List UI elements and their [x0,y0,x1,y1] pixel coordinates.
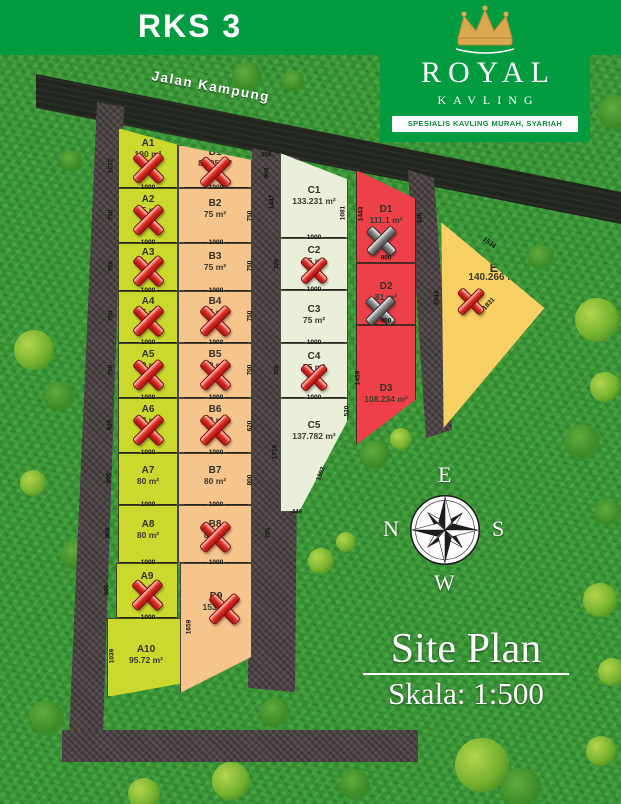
plot-id: A10 [137,644,155,655]
dimension-label-road-right-top: 430 [417,213,424,224]
lot-width-dimension: 1000 [283,286,345,293]
lot-width-dimension: 1000 [283,234,345,241]
dimension-label-D1-left: 1443 [358,207,365,221]
lot-width-dimension: 1000 [120,239,176,246]
plot-id: A7 [142,465,155,476]
dimension-label-A3-left: 780 [108,261,115,272]
plot-id: A1 [142,138,155,149]
brand-tagline: SPESIALIS KAVLING MURAH, SYARIAH [392,116,578,132]
lot-width-dimension: 1000 [120,449,176,456]
dimension-label-B4-right: 750 [247,311,254,322]
crown-icon [450,4,520,56]
plot-area: 80 m² [137,530,159,540]
plot-id: A8 [142,519,155,530]
dimension-label-B7-right: 800 [247,475,254,486]
plot-A7[interactable]: A780 m² [118,453,178,505]
plot-id: D2 [380,281,393,292]
gray-x-sold-marker [365,225,397,257]
plot-area: 75 m² [137,205,159,215]
plot-area: 70 m² [137,360,159,370]
compass-rose-icon [407,492,483,568]
plot-B6[interactable]: B692 m² [178,398,252,453]
lot-width-dimension: 1000 [120,339,176,346]
lot-width-dimension: 1000 [120,287,176,294]
plot-area: 70 m² [204,360,226,370]
plot-B4[interactable]: B475 m² [178,291,252,343]
plot-area: 92 m² [137,415,159,425]
plot-id: D1 [380,204,393,215]
plot-area: 75 m² [303,315,325,325]
plot-C4[interactable]: C475 m² [280,343,348,398]
plot-area: 80 m² [137,476,159,486]
plot-B2[interactable]: B275 m² [178,188,252,243]
plot-area: 133.231 m² [292,196,335,206]
dimension-label-C1-right: 1081 [340,206,347,220]
dimension-label-A10-left: 1039 [109,649,116,663]
plot-id: D3 [380,383,393,394]
lot-width-dimension: 1000 [184,339,248,346]
plot-id: A3 [142,247,155,258]
dimension-label-C5-right: 520 [344,406,351,417]
site-plan-poster: Jalan Kampung A1100 m²A275 m²A378 m²A475… [0,0,621,804]
plot-A4[interactable]: A475 m² [118,291,178,343]
dimension-label-road-top: 300 [261,152,272,159]
plot-id: B9 [210,591,223,602]
compass-west-label: W [434,570,455,596]
dimension-label-B6-right: 620 [247,421,254,432]
dimension-label-C5-left: 1718 [272,445,279,459]
plot-area: 75 m² [204,307,226,317]
plot-area: 78 m² [137,258,159,268]
plot-area: 75 m² [204,262,226,272]
plot-id: C5 [308,420,321,431]
dimension-label-road-middle-bottom: 765 [265,528,272,539]
plot-area: 92 m² [204,415,226,425]
plot-area: 80 m² [204,476,226,486]
plot-area: 75 m² [137,307,159,317]
plot-area: 75 m² [303,362,325,372]
lot-width-dimension: 1000 [184,501,248,508]
lot-width-dimension: 1000 [120,184,176,191]
plot-id: A4 [142,296,155,307]
plot-C3[interactable]: C375 m² [280,290,348,343]
compass-east-label: E [438,462,451,488]
dimension-label-C2-left: 720 [274,259,281,270]
brand-name: ROYAL [380,56,590,90]
plot-A3[interactable]: A378 m² [118,243,178,291]
plot-C2[interactable]: C275 m² [280,238,348,290]
lot-width-dimension: 1000 [184,559,248,566]
plot-id: C1 [308,185,321,196]
lot-width-dimension: 1000 [184,394,248,401]
dimension-label-A7-left: 800 [106,473,113,484]
plot-B8[interactable]: B880 m² [178,505,252,563]
brand-subname: KAVLING [380,93,590,108]
site-plan-title-block: Site Plan Skala: 1:500 [352,628,580,711]
lot-width-dimension: 1000 [184,287,248,294]
dimension-label-B9-left: 1659 [186,620,193,634]
dimension-label-D2-bottom: 800 [381,318,392,325]
plot-id: B2 [209,198,222,209]
plot-B7[interactable]: B780 m² [178,453,252,505]
dimension-label-C5-bottom: 446 [292,509,303,516]
poster-title: RKS 3 [60,8,320,45]
plot-id: B5 [209,349,222,360]
dimension-label-B2-right: 750 [247,211,254,222]
lot-width-dimension: 1000 [283,394,345,401]
lot-width-dimension: 1000 [120,394,176,401]
lot-width-dimension: 1000 [184,239,248,246]
plot-area: 87.05 m² [198,158,232,168]
dimension-label-A1-left: 1072 [108,159,115,173]
dimension-label-C4-left: 700 [274,365,281,376]
title-underline [363,673,568,675]
site-plan-title: Site Plan [352,628,580,670]
dimension-label-C1-left: 1447 [269,195,276,209]
dimension-label-road-right: 2044 [434,291,441,305]
brand-logo-panel: ROYAL KAVLING SPESIALIS KAVLING MURAH, S… [380,0,590,142]
plot-area: 75 m² [204,209,226,219]
plot-id: B4 [209,296,222,307]
scale-label: Skala: 1:500 [352,677,580,711]
plot-id: A5 [142,349,155,360]
plot-A8[interactable]: A880 m² [118,505,178,563]
dimension-label-A8-left: 800 [105,528,112,539]
lot-width-dimension: 1000 [184,184,248,191]
plot-A9[interactable]: A980 m² [116,563,178,618]
lot-width-dimension: 1000 [120,614,176,621]
dimension-label-B1-right: 900 [264,168,271,179]
plot-id: A9 [141,571,154,582]
dimension-label-D1-bottom: 900 [381,255,392,262]
compass-north-label: N [383,516,399,542]
plot-id: C3 [308,304,321,315]
plot-id: B7 [209,465,222,476]
dimension-label-A4-left: 750 [108,311,115,322]
lot-width-dimension: 1000 [120,501,176,508]
plot-id: B6 [209,404,222,415]
plot-area: 137.782 m² [292,431,335,441]
lot-width-dimension: 1000 [184,449,248,456]
dimension-label-A5-left: 700 [108,365,115,376]
plot-B5[interactable]: B570 m² [178,343,252,398]
plot-area: 111.1 m² [369,215,402,225]
plot-B3[interactable]: B375 m² [178,243,252,291]
dimension-label-B5-right: 700 [247,365,254,376]
dimension-label-A6-left: 920 [107,420,114,431]
dimension-label-A2-left: 750 [108,210,115,221]
compass-south-label: S [492,516,504,542]
plot-A5[interactable]: A570 m² [118,343,178,398]
plot-id: C4 [308,351,321,362]
lot-width-dimension: 1000 [120,559,176,566]
plot-area: 100 m² [135,149,162,159]
lot-width-dimension: 1000 [283,339,345,346]
plot-area: 153 m² [203,602,230,612]
plot-id: B8 [209,519,222,530]
plot-area: 108.234 m² [364,394,407,404]
plot-id: C2 [308,245,321,256]
red-x-sold-marker [457,287,487,317]
plot-id: B3 [209,251,222,262]
dimension-label-B3-right: 750 [247,261,254,272]
plot-area: 80 m² [204,530,226,540]
plot-D2[interactable]: D281 m² [356,263,416,325]
plot-area: 75 m² [303,256,325,266]
plot-id: A2 [142,194,155,205]
dimension-label-D3-left: 1459 [355,371,362,385]
plot-A2[interactable]: A275 m² [118,188,178,243]
plot-A6[interactable]: A692 m² [118,398,178,453]
plot-area: 80 m² [136,582,158,592]
plot-id: A6 [142,404,155,415]
plot-area: 81 m² [375,292,397,302]
dimension-label-A9-left: 800 [104,585,111,596]
plot-area: 95.72 m² [129,655,163,665]
